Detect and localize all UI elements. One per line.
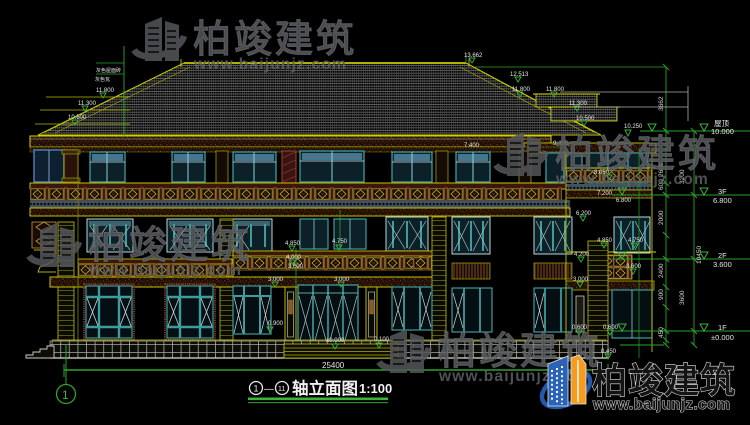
svg-text:1: 1: [62, 388, 69, 402]
svg-text:www.baijunjz.com: www.baijunjz.com: [592, 396, 730, 413]
svg-text:1F: 1F: [718, 323, 727, 332]
svg-text:7.400: 7.400: [464, 143, 480, 149]
svg-text:11: 11: [278, 386, 285, 393]
svg-text:3F: 3F: [718, 187, 727, 196]
svg-text:6.800: 6.800: [713, 196, 732, 205]
svg-text:灰色屋面砖: 灰色屋面砖: [96, 67, 121, 74]
svg-text:±0.000: ±0.000: [326, 338, 345, 344]
svg-text:0.900: 0.900: [268, 321, 284, 327]
svg-text:10.250: 10.250: [624, 124, 643, 130]
svg-text:3662: 3662: [658, 96, 665, 111]
svg-text:6.800: 6.800: [616, 198, 632, 204]
svg-text:柏竣建筑: 柏竣建筑: [592, 361, 736, 401]
svg-text:7.200: 7.200: [597, 191, 613, 197]
svg-text:25400: 25400: [322, 361, 345, 370]
svg-text:0.100: 0.100: [374, 337, 390, 343]
svg-text:450: 450: [658, 327, 665, 338]
svg-text:1: 1: [254, 384, 259, 394]
svg-text:1:100: 1:100: [359, 381, 392, 396]
svg-text:2F: 2F: [718, 251, 727, 260]
svg-text:3.600: 3.600: [713, 260, 732, 269]
svg-text:±0.000: ±0.000: [711, 333, 734, 342]
svg-text:灰色瓦: 灰色瓦: [95, 76, 110, 83]
svg-text:2400: 2400: [658, 263, 665, 278]
svg-text:3600: 3600: [679, 290, 686, 305]
svg-text:—: —: [264, 384, 274, 395]
svg-text:2000: 2000: [658, 210, 665, 225]
svg-text:900: 900: [658, 289, 665, 300]
svg-text:轴立面图: 轴立面图: [292, 378, 358, 398]
